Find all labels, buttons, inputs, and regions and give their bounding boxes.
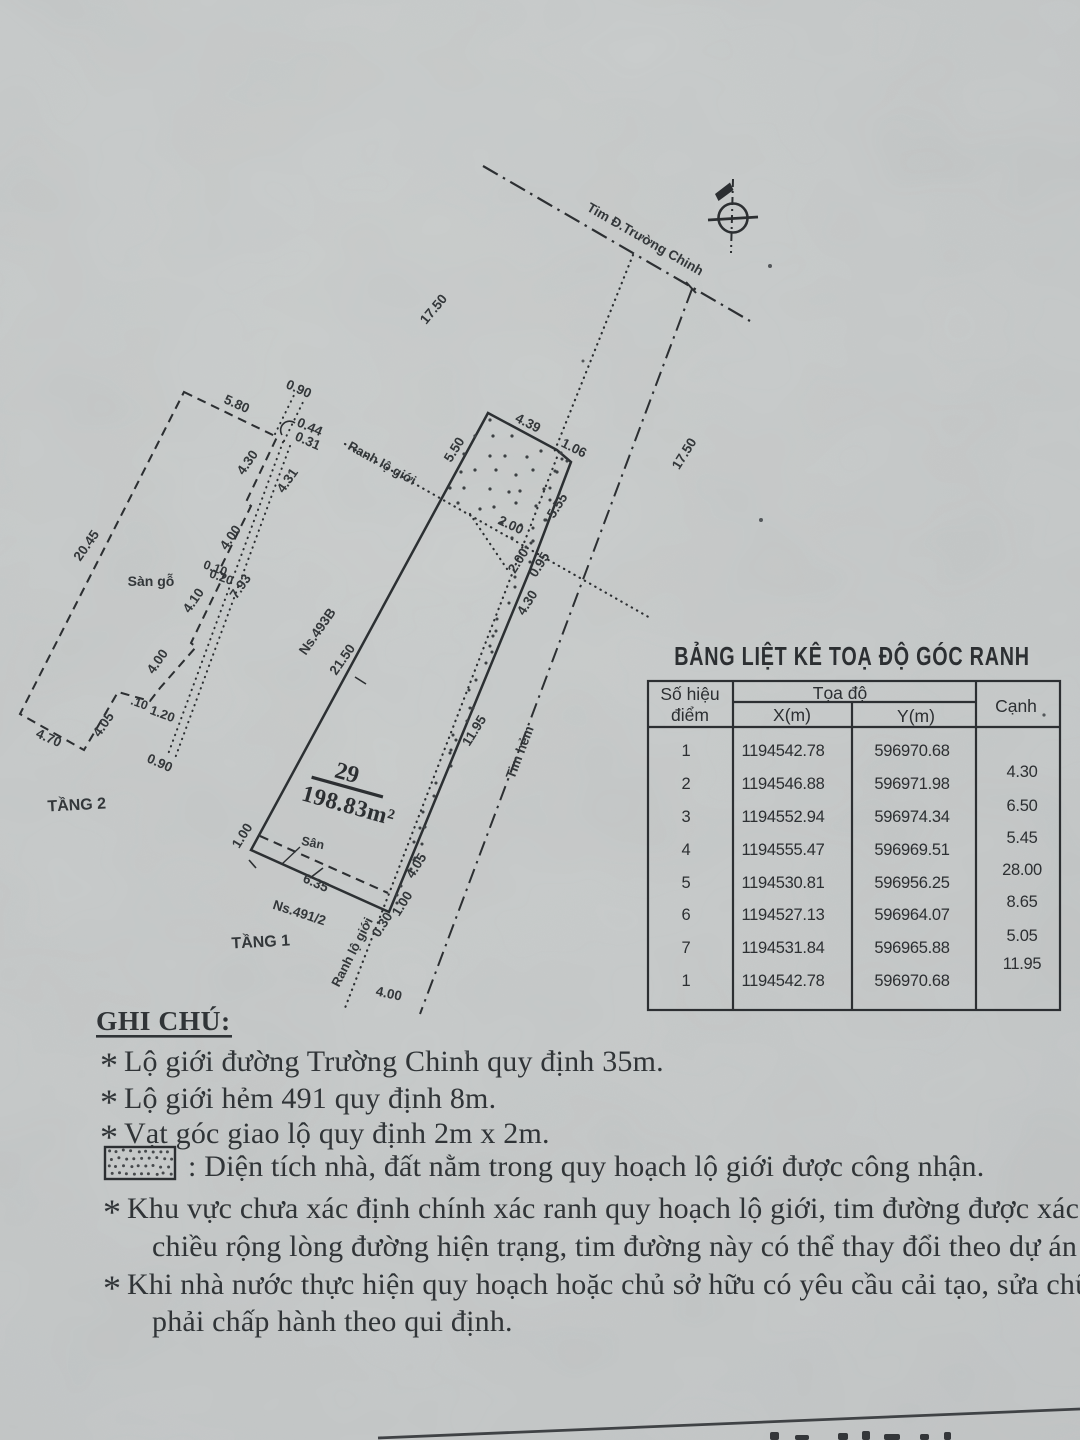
- svg-text:: Diện tích nhà, đất nằm trong: : Diện tích nhà, đất nằm trong quy hoạch…: [188, 1150, 984, 1183]
- svg-text:1194546.88: 1194546.88: [742, 775, 825, 793]
- svg-text:596970.68: 596970.68: [874, 972, 949, 990]
- svg-text:Số hiệu: Số hiệu: [660, 684, 719, 704]
- svg-text:điểm: điểm: [671, 705, 709, 725]
- svg-text:5.05: 5.05: [1007, 927, 1038, 945]
- svg-text:596964.07: 596964.07: [874, 906, 949, 924]
- svg-text:GHI CHÚ:: GHI CHÚ:: [96, 1005, 231, 1036]
- svg-text:6.50: 6.50: [1007, 797, 1038, 815]
- svg-text:Vạt góc giao lộ quy định 2m x: Vạt góc giao lộ quy định 2m x 2m.: [124, 1117, 550, 1150]
- svg-text:1194530.81: 1194530.81: [742, 874, 825, 892]
- svg-text:Cạnh: Cạnh: [995, 696, 1037, 716]
- svg-text:1: 1: [682, 972, 691, 990]
- svg-text:Y(m): Y(m): [897, 706, 935, 726]
- svg-text:4: 4: [682, 841, 691, 859]
- svg-text:*: *: [103, 1268, 121, 1308]
- svg-text:Sàn gỗ: Sàn gỗ: [128, 573, 175, 589]
- svg-text:596970.68: 596970.68: [874, 742, 949, 760]
- svg-text:4.30: 4.30: [1007, 763, 1038, 781]
- svg-text:7: 7: [682, 939, 691, 957]
- svg-text:1194552.94: 1194552.94: [742, 808, 825, 826]
- svg-text:596956.25: 596956.25: [874, 874, 949, 892]
- svg-text:chiều rộng lòng đường hiện trạ: chiều rộng lòng đường hiện trạng, tim đư…: [152, 1230, 1080, 1263]
- svg-text:5: 5: [682, 874, 691, 892]
- svg-text:5.45: 5.45: [1007, 829, 1038, 847]
- svg-text:phải chấp hành theo qui định.: phải chấp hành theo qui định.: [152, 1305, 513, 1338]
- svg-text:2: 2: [682, 775, 691, 793]
- svg-text:11.95: 11.95: [1003, 955, 1042, 973]
- svg-text:28.00: 28.00: [1002, 861, 1042, 879]
- svg-text:1194531.84: 1194531.84: [742, 939, 825, 957]
- svg-text:Khi nhà nước thực hiện quy hoạ: Khi nhà nước thực hiện quy hoạch hoặc ch…: [127, 1268, 1080, 1301]
- svg-text:3: 3: [682, 808, 691, 826]
- svg-text:Lộ giới đường Trường Chinh quy: Lộ giới đường Trường Chinh quy định 35m.: [124, 1045, 664, 1078]
- svg-text:Lộ giới hẻm 491 quy định 8m.: Lộ giới hẻm 491 quy định 8m.: [124, 1082, 496, 1115]
- svg-text:*: *: [100, 1082, 118, 1122]
- svg-text:8.65: 8.65: [1007, 893, 1038, 911]
- svg-text:1194542.78: 1194542.78: [742, 972, 825, 990]
- svg-text:BẢNG LIỆT KÊ TOẠ ĐỘ GÓC RANH: BẢNG LIỆT KÊ TOẠ ĐỘ GÓC RANH: [674, 639, 1030, 671]
- svg-text:596971.98: 596971.98: [874, 775, 949, 793]
- svg-text:1: 1: [682, 742, 691, 760]
- svg-text:*: *: [100, 1045, 118, 1085]
- svg-text:1194555.47: 1194555.47: [742, 841, 825, 859]
- svg-text:596969.51: 596969.51: [874, 841, 949, 859]
- svg-text:Khu vực chưa xác định chính xá: Khu vực chưa xác định chính xác ranh quy…: [127, 1192, 1079, 1225]
- svg-text:6: 6: [682, 906, 691, 924]
- svg-text:1194527.13: 1194527.13: [742, 906, 825, 924]
- svg-text:X(m): X(m): [773, 705, 811, 725]
- svg-text:596965.88: 596965.88: [874, 939, 949, 957]
- svg-text:*: *: [103, 1192, 121, 1232]
- svg-text:596974.34: 596974.34: [874, 808, 949, 826]
- svg-text:Tọa độ: Tọa độ: [813, 683, 867, 703]
- svg-text:1194542.78: 1194542.78: [742, 742, 825, 760]
